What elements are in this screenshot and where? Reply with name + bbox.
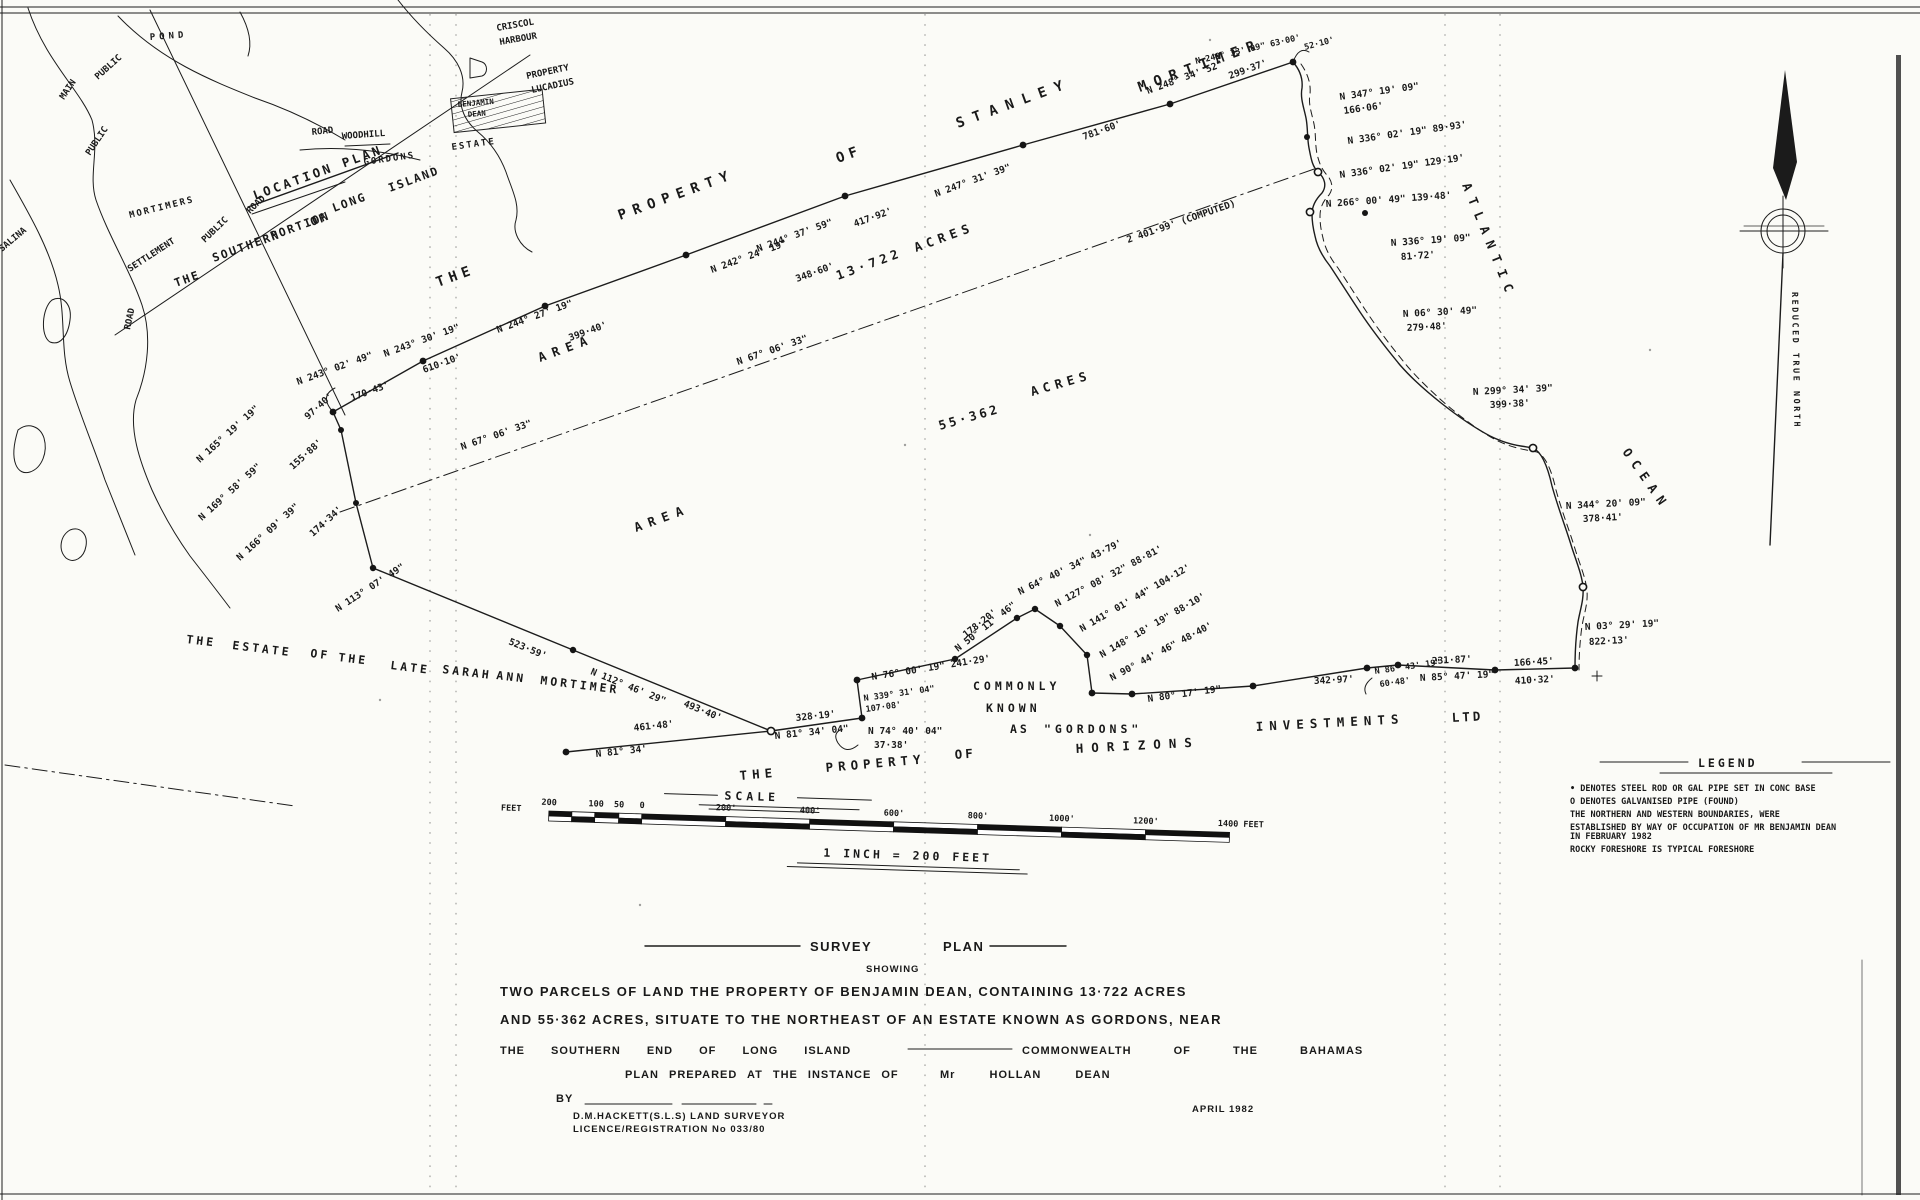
- south-owner-word: HORIZONS: [1075, 735, 1200, 756]
- distance-label: 328·19': [795, 709, 836, 724]
- scale-flourish: [797, 798, 871, 800]
- survey-marker: [1084, 652, 1090, 658]
- dean-label: DEAN: [467, 108, 486, 119]
- bearing-label: N 06° 30' 49": [1403, 305, 1478, 320]
- survey-marker: [330, 409, 337, 416]
- bearing-label: N 50° 11' 46": [953, 600, 1018, 654]
- survey-marker: [1250, 683, 1257, 690]
- owner-word: STANLEY: [954, 75, 1074, 132]
- survey-marker: [1020, 142, 1027, 149]
- scale-segment: [549, 816, 572, 822]
- estate-word: THE: [338, 650, 369, 668]
- scale-segment: [572, 817, 595, 823]
- estate-word: THE: [186, 632, 217, 650]
- legend-line: THE NORTHERN AND WESTERN BOUNDARIES, WER…: [1570, 810, 1780, 820]
- survey-marker: [1362, 210, 1368, 216]
- title-line: PLAN PREPARED AT THE INSTANCE OF: [625, 1069, 899, 1081]
- scan-shadow: [1896, 55, 1901, 1195]
- distance-label: 610·10': [421, 352, 462, 376]
- main-road-label: MAIN: [58, 78, 78, 102]
- estate-word: ANN: [496, 668, 527, 686]
- bearing-label: N 243° 30' 19": [382, 322, 461, 360]
- scan-speck: [639, 904, 641, 906]
- distance-label: 97·40': [303, 391, 336, 422]
- survey-plan-canvas: POND PUBLIC MAIN PUBLIC SALINA ROAD MORT…: [0, 0, 1920, 1200]
- computed-distance-label: 2 401·99' (COMPUTED): [1125, 198, 1237, 246]
- distance-label: 170·43': [349, 380, 390, 404]
- scale-tick: 0: [639, 801, 644, 811]
- distance-label: 174·34': [308, 504, 345, 539]
- scan-speck: [904, 444, 906, 446]
- found-pipe-marker: [1579, 583, 1586, 590]
- legend-line: ROCKY FORESHORE IS TYPICAL FORESHORE: [1570, 845, 1754, 855]
- found-pipe-marker: [1529, 444, 1536, 451]
- estate-word: SARAH: [442, 662, 493, 682]
- survey-plan-sheet: POND PUBLIC MAIN PUBLIC SALINA ROAD MORT…: [0, 0, 1920, 1200]
- scan-speck: [1649, 349, 1651, 351]
- title-showing: SHOWING: [866, 964, 919, 975]
- survey-marker: [859, 715, 866, 722]
- estate-boundary-dashline: [5, 765, 295, 806]
- area-unit: ACRES: [912, 219, 976, 255]
- surveyor-name: D.M.HACKETT(S.L.S) LAND SURVEYOR: [573, 1111, 785, 1122]
- distance-label: 342·97': [1314, 674, 1355, 687]
- title-line: AND 55·362 ACRES, SITUATE TO THE NORTHEA…: [500, 1012, 1222, 1027]
- bearing-label: N 81° 34': [595, 744, 647, 760]
- distance-label: 417·92': [852, 206, 893, 230]
- survey-marker: [1572, 665, 1579, 672]
- scale-title: SCALE: [724, 789, 779, 805]
- survey-marker: [854, 677, 861, 684]
- hatched-parcel: [451, 89, 546, 132]
- distance-label: 155·88': [288, 437, 325, 472]
- south-owner-word: THE: [739, 765, 778, 783]
- survey-marker: [353, 500, 359, 506]
- south-owner-word: INVESTMENTS: [1255, 711, 1404, 734]
- owner-word: OF: [834, 143, 865, 167]
- scale-flourish: [665, 794, 718, 796]
- parcel-boundaries: [5, 50, 1602, 806]
- legend-title: LEGEND: [1698, 756, 1758, 770]
- legend-line: O DENOTES GALVANISED PIPE (FOUND): [1570, 797, 1739, 807]
- survey-marker: [1032, 606, 1038, 612]
- benjamin-dean-parcel: [451, 89, 546, 132]
- survey-marker: [563, 749, 570, 756]
- title-line: TWO PARCELS OF LAND THE PROPERTY OF BENJ…: [500, 984, 1187, 999]
- survey-marker: [1089, 690, 1096, 697]
- distance-label: 378·41': [1583, 512, 1624, 525]
- survey-marker: [370, 565, 376, 571]
- pipe-symbol: [470, 58, 487, 78]
- bearing-label: N 113° 07' 49": [334, 562, 407, 615]
- survey-marker: [683, 252, 690, 259]
- distance-label: 822·13': [1589, 635, 1630, 648]
- north-arrow-shaft: [1770, 253, 1783, 545]
- bearing-label: N 299° 34' 39": [1473, 383, 1554, 398]
- subtitle-word: LONG: [330, 189, 368, 214]
- scan-speck: [379, 699, 381, 701]
- scale-equation-underline: [787, 867, 1027, 875]
- distance-label: 166·45': [1514, 656, 1555, 669]
- mortimers-label: MORTIMERS: [128, 195, 195, 221]
- bearing-labels: N 243° 02' 49" 170·43' N 243° 30' 19" 61…: [195, 33, 1660, 760]
- bearing-label: N 244° 37' 59": [755, 217, 834, 255]
- title-heading: PLAN: [943, 939, 984, 954]
- survey-marker: [570, 647, 576, 653]
- north-arrow-label: REDUCED TRUE NORTH: [1789, 292, 1801, 429]
- owner-word: PROPERTY: [616, 167, 737, 224]
- bearing-label: N 141° 01' 44" 104·12': [1078, 562, 1192, 634]
- title-line: Mr HOLLAN DEAN: [940, 1069, 1111, 1081]
- legend: LEGEND • DENOTES STEEL ROD OR GAL PIPE S…: [1570, 756, 1890, 855]
- legend-line: • DENOTES STEEL ROD OR GAL PIPE SET IN C…: [1570, 784, 1816, 794]
- gordons-word: COMMONLY: [973, 679, 1060, 693]
- gordons-word: "GORDONS": [1044, 722, 1142, 736]
- subtitle-word: ISLAND: [386, 163, 441, 194]
- survey-marker: [1014, 615, 1020, 621]
- found-pipe-marker: [1306, 208, 1313, 215]
- public-road-label: PUBLIC: [84, 125, 110, 158]
- coastline-inner: [10, 180, 135, 555]
- east-coast-boundary: [1293, 62, 1583, 668]
- bearing-label: N 169° 58' 59": [197, 461, 264, 523]
- bearing-label: N 64° 40' 34" 43·79': [1016, 538, 1124, 598]
- road-label: ROAD: [311, 126, 334, 138]
- scale-tick: 800': [968, 811, 989, 822]
- scale-segment: [595, 817, 619, 823]
- salina-pond: [14, 426, 45, 473]
- scale-tick: 400': [800, 806, 821, 817]
- bearing-label: N 166° 09' 39": [235, 501, 302, 563]
- survey-marker: [1364, 665, 1371, 672]
- bearing-label: N 347° 19' 09": [1339, 81, 1420, 103]
- scale-bar: SCALE FEET 200 100 50 0 200' 400' 600' 8…: [499, 782, 1264, 882]
- west-boundary: [333, 412, 373, 568]
- bearing-label: N 344° 20' 09": [1566, 497, 1647, 512]
- bearing-label: N 81° 34' 04": [774, 723, 849, 742]
- distance-label: 81·72': [1400, 250, 1435, 263]
- scale-equation: 1 INCH = 200 FEET: [823, 846, 992, 865]
- distance-label: 410·32': [1515, 674, 1556, 687]
- title-line: THE SOUTHERN END OF LONG ISLAND: [500, 1045, 851, 1057]
- bearing-label: N 74° 40' 04": [868, 726, 942, 737]
- scale-tick: 1400 FEET: [1218, 819, 1264, 830]
- found-pipe-marker: [1314, 168, 1321, 175]
- estate-word: LATE: [390, 658, 431, 677]
- estate-word: ESTATE: [232, 638, 293, 659]
- distance-label: 348·60': [794, 261, 835, 285]
- distance-label: 461·48': [633, 719, 674, 734]
- estate-label: ESTATE: [451, 137, 496, 153]
- bearing-label: N 336° 02' 19" 129·19': [1339, 153, 1465, 181]
- area-value: 13·722: [834, 245, 904, 283]
- woodhill-label: WOODHILL: [342, 129, 387, 142]
- scale-tick: 200': [716, 803, 737, 814]
- survey-marker: [1129, 691, 1136, 698]
- bearing-label: N 03° 29' 19": [1585, 618, 1660, 633]
- public-road-label: PUBLIC: [93, 53, 124, 82]
- bearing-label: N 85° 47' 19": [1420, 669, 1495, 684]
- south-owner-word: LTD: [1451, 708, 1483, 725]
- south-owner-word: OF: [954, 746, 976, 762]
- estate-word: OF: [310, 646, 331, 662]
- bearing-label: N 266° 00' 49" 139·48': [1325, 190, 1451, 210]
- pond-label: POND: [150, 30, 188, 43]
- distance-label: 523·59': [507, 637, 548, 662]
- distance-label: 279·48': [1407, 321, 1448, 334]
- distance-label: 37·38': [874, 740, 908, 751]
- settlement-label: SETTLEMENT: [126, 236, 177, 274]
- scale-tick: 1000': [1049, 814, 1075, 825]
- distance-label: 166·06': [1343, 101, 1384, 117]
- title-by: BY: [556, 1093, 573, 1105]
- title-line: COMMONWEALTH OF THE BAHAMAS: [1022, 1045, 1363, 1057]
- distance-label: 52·10': [1303, 35, 1335, 53]
- scale-segment: [619, 818, 642, 824]
- scale-tick: 600': [884, 809, 905, 820]
- owner-word: THE: [434, 262, 477, 291]
- area-unit: ACRES: [1029, 367, 1093, 399]
- legend-line: IN FEBRUARY 1982: [1570, 832, 1652, 842]
- bearing-label: N 165° 19' 19": [195, 403, 262, 465]
- salina-label: SALINA: [0, 225, 29, 254]
- road-label: ROAD: [123, 307, 137, 331]
- scale-tick: 200: [541, 798, 557, 808]
- area-label: AREA: [536, 331, 596, 365]
- harbour-label: HARBOUR: [499, 31, 539, 48]
- scale-tick: 1200': [1133, 816, 1159, 827]
- south-owner-word: PROPERTY: [825, 751, 926, 775]
- north-arrow-head: [1773, 70, 1797, 200]
- public-road-label: PUBLIC: [200, 215, 230, 245]
- harbour-label: CRISCOL: [496, 17, 536, 34]
- bearing-label: N 90° 44' 46" 48·40': [1108, 620, 1214, 683]
- scan-speck: [1089, 534, 1091, 536]
- pond-shore: [240, 12, 250, 56]
- bearing-label: N 80° 17' 19": [1147, 684, 1222, 705]
- north-arrow: REDUCED TRUE NORTH: [1740, 70, 1828, 545]
- survey-marker: [1290, 59, 1297, 66]
- salina-pond: [61, 529, 86, 560]
- distance-label: 60·48': [1379, 676, 1411, 690]
- survey-marker: [842, 193, 849, 200]
- bearing-label: N 244° 27' 19": [495, 298, 574, 336]
- area-value: 55·362: [937, 401, 1002, 433]
- bearing-label: N 336° 02' 19" 89·93': [1347, 119, 1467, 147]
- distance-label: 399·38': [1490, 398, 1531, 411]
- survey-marker: [338, 427, 344, 433]
- survey-marker: [1057, 623, 1063, 629]
- survey-marker: [1167, 101, 1174, 108]
- distance-label: 231·87': [1432, 654, 1473, 667]
- area-label: AREA: [632, 501, 692, 535]
- survey-marker: [1304, 134, 1310, 140]
- scale-tick: 100: [588, 799, 604, 809]
- plan-date: APRIL 1982: [1192, 1104, 1254, 1115]
- surveyor-licence: LICENCE/REGISTRATION No 033/80: [573, 1124, 765, 1135]
- title-block: SURVEY PLAN SHOWING TWO PARCELS OF LAND …: [500, 939, 1363, 1135]
- gordons-word: AS: [1010, 722, 1030, 736]
- bearing-label: N 336° 19' 09": [1390, 232, 1471, 249]
- bearing-label: N 243° 02' 49": [295, 350, 374, 388]
- bearing-label: N 67° 06' 33": [735, 333, 809, 368]
- scan-speck: [1209, 39, 1211, 41]
- scale-tick: 50: [614, 800, 625, 810]
- label-arrow: [1365, 678, 1372, 694]
- title-heading: SURVEY: [810, 939, 872, 954]
- property-owner-label: LUCADIUS: [531, 77, 575, 96]
- scale-feet-prefix: FEET: [501, 803, 522, 814]
- salina-pond: [43, 298, 70, 342]
- gordons-word: KNOWN: [986, 701, 1041, 715]
